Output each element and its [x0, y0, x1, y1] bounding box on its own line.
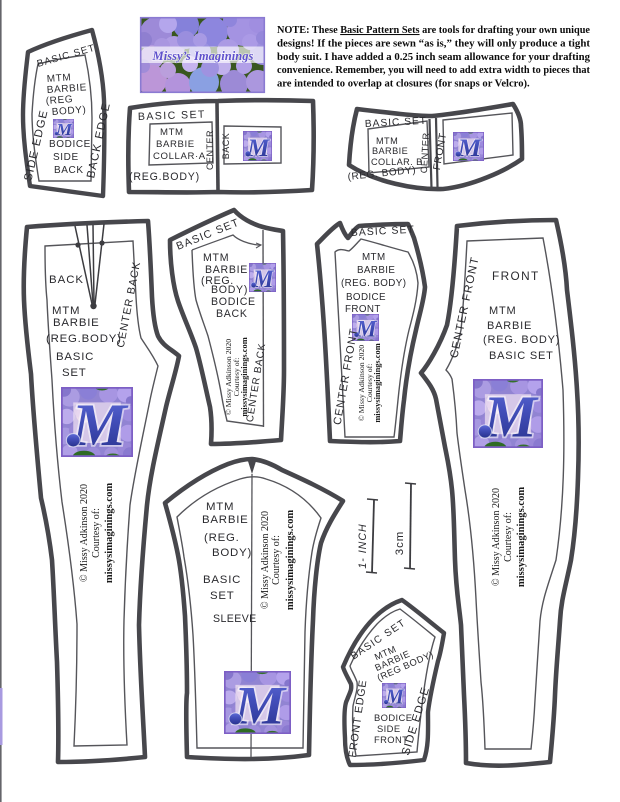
svg-text:Courtesy of:: Courtesy of:: [91, 508, 102, 558]
svg-text:SLEEVE: SLEEVE: [213, 613, 257, 625]
svg-text:MTM: MTM: [160, 127, 184, 138]
svg-text:MTM: MTM: [376, 136, 398, 146]
svg-text:MTM: MTM: [203, 252, 229, 264]
svg-text:Missy’s Imaginings: Missy’s Imaginings: [152, 49, 254, 63]
svg-text:BACK: BACK: [216, 308, 248, 320]
svg-text:BASIC: BASIC: [56, 351, 94, 363]
svg-text:BARBIE: BARBIE: [487, 320, 532, 332]
svg-text:BASIC: BASIC: [203, 574, 241, 586]
svg-text:MTM: MTM: [52, 305, 80, 317]
svg-text:SIDE: SIDE: [377, 723, 400, 734]
svg-text:BARBIE: BARBIE: [53, 317, 100, 329]
svg-text:BARBIE: BARBIE: [357, 265, 395, 276]
svg-text:SET: SET: [62, 367, 87, 379]
svg-text:NOTE: These Basic Pattern Sets: NOTE: These Basic Pattern Sets are tools…: [277, 25, 590, 36]
svg-text:designs! If the pieces are sew: designs! If the pieces are sewn “as is,”…: [277, 38, 590, 49]
svg-text:SIDE: SIDE: [53, 152, 79, 163]
svg-text:BASIC SET: BASIC SET: [138, 109, 206, 123]
svg-text:FRONT: FRONT: [492, 269, 540, 283]
svg-text:BACK: BACK: [49, 274, 84, 286]
svg-text:SET: SET: [210, 590, 235, 602]
svg-text:are intended to overlap at clo: are intended to overlap at closures (for…: [277, 79, 530, 90]
svg-text:BODICE: BODICE: [346, 292, 386, 303]
svg-text:BARBIE: BARBIE: [202, 514, 249, 526]
svg-text:missysimaginings.com: missysimaginings.com: [104, 483, 115, 584]
svg-text:body suit. I have added a 0.25: body suit. I have added a 0.25 inch seam…: [277, 52, 591, 63]
svg-text:© Missy Adkinson 2020: © Missy Adkinson 2020: [260, 511, 271, 609]
svg-text:BODICE: BODICE: [49, 139, 91, 150]
svg-text:3cm: 3cm: [394, 531, 406, 556]
svg-text:BODICE: BODICE: [211, 296, 256, 308]
svg-text:COLLAR·A: COLLAR·A: [153, 151, 206, 162]
svg-text:BODICE: BODICE: [374, 712, 412, 723]
svg-text:BASIC SET: BASIC SET: [489, 350, 554, 362]
svg-text:BACK: BACK: [221, 133, 231, 160]
svg-text:MTM: MTM: [489, 305, 516, 317]
svg-text:1- INCH: 1- INCH: [357, 523, 369, 568]
svg-text:© Missy Adkinson 2020: © Missy Adkinson 2020: [79, 484, 90, 582]
svg-text:BARBIE: BARBIE: [372, 146, 408, 156]
svg-text:MTM: MTM: [206, 501, 234, 513]
svg-text:convenience. Remember, you wil: convenience. Remember, you will need to …: [277, 65, 590, 76]
svg-text:(REG.: (REG.: [204, 532, 240, 544]
svg-text:missysimaginings.com: missysimaginings.com: [516, 487, 527, 588]
svg-text:CENTER: CENTER: [205, 130, 215, 170]
svg-text:(REG. BODY): (REG. BODY): [483, 334, 560, 346]
svg-text:BODY): BODY): [211, 284, 248, 296]
svg-text:BODY): BODY): [212, 547, 252, 559]
svg-text:BACK: BACK: [54, 165, 84, 176]
svg-text:Courtesy of:: Courtesy of:: [503, 512, 514, 562]
svg-text:© Missy Adkinson 2020: © Missy Adkinson 2020: [491, 488, 502, 586]
svg-text:FRONT: FRONT: [345, 304, 381, 315]
svg-text:BARBIE: BARBIE: [156, 139, 195, 150]
svg-text:missysimaginings.com: missysimaginings.com: [373, 343, 382, 422]
svg-text:CENTER: CENTER: [419, 132, 431, 173]
svg-text:(REG.BODY): (REG.BODY): [129, 171, 200, 183]
svg-text:Courtesy of:: Courtesy of:: [271, 535, 282, 585]
svg-text:missysimaginings.com: missysimaginings.com: [285, 510, 296, 611]
svg-text:MTM: MTM: [362, 252, 386, 263]
svg-text:(REG.BODY): (REG.BODY): [46, 333, 122, 345]
svg-text:(REG. BODY): (REG. BODY): [341, 278, 406, 289]
